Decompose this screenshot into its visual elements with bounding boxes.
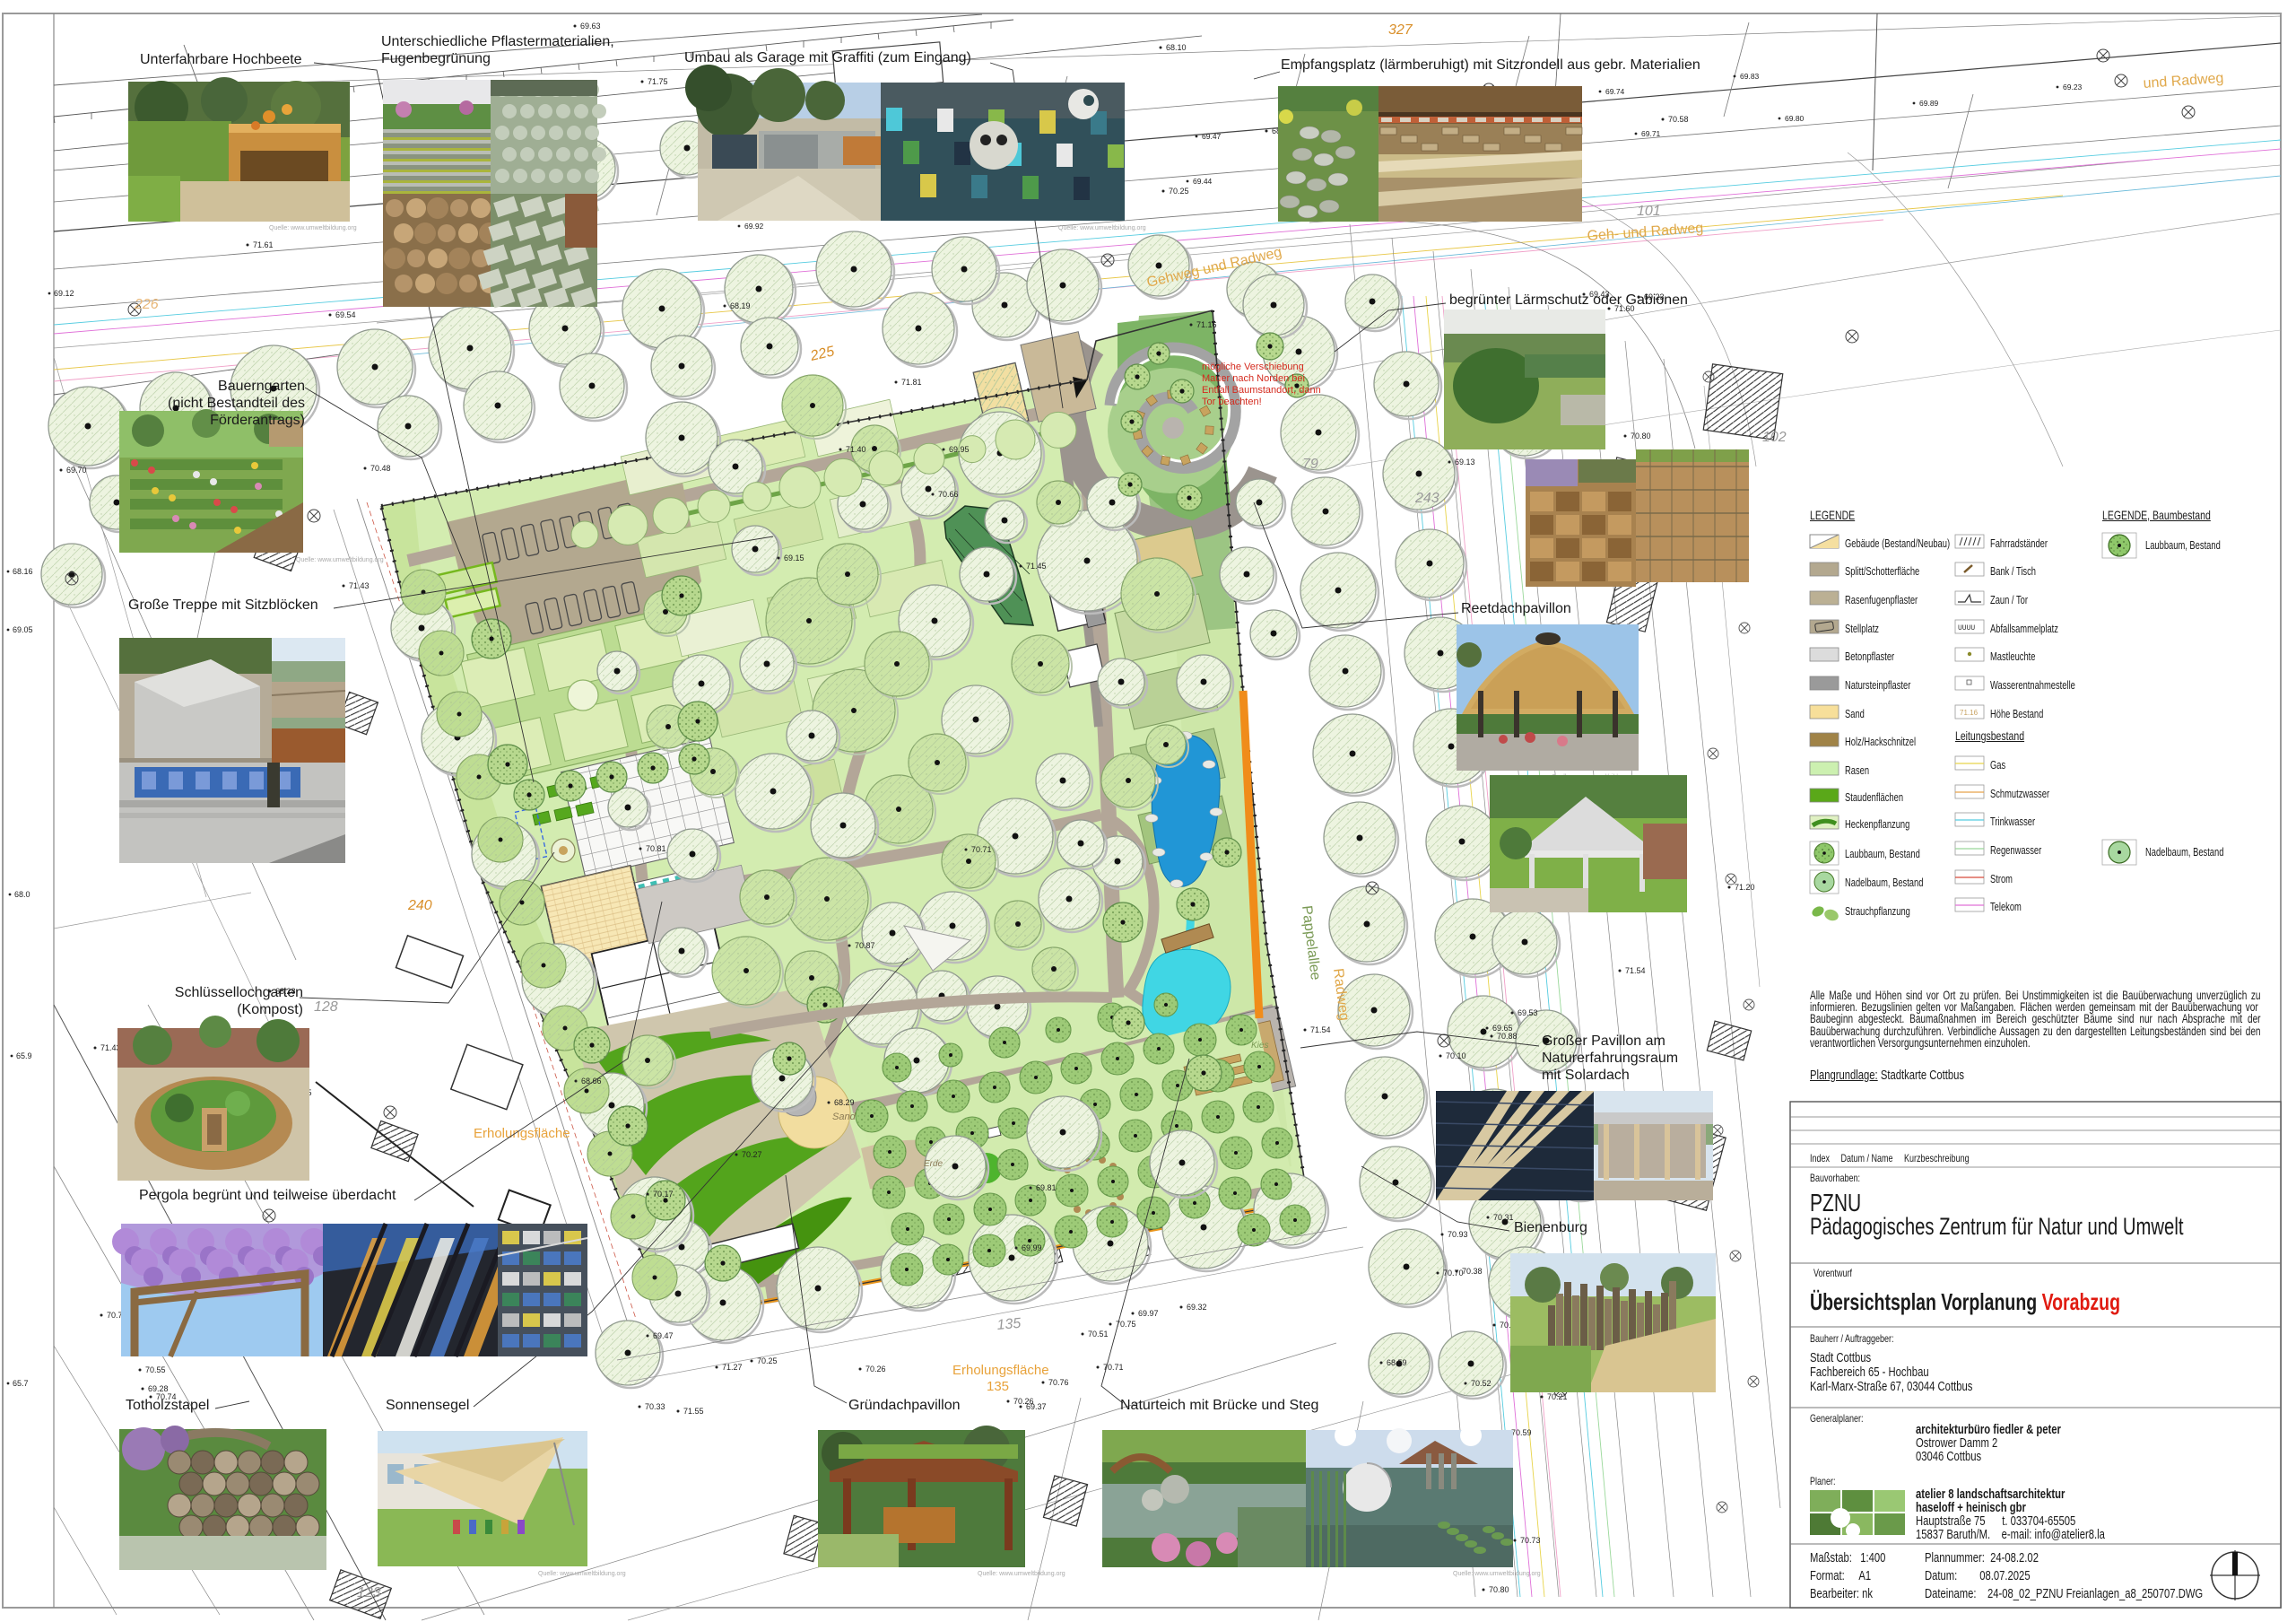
svg-text:70.71: 70.71 bbox=[971, 845, 992, 854]
svg-text:70.66: 70.66 bbox=[938, 490, 959, 499]
svg-text:102: 102 bbox=[1762, 430, 1787, 445]
svg-text:135: 135 bbox=[996, 1316, 1022, 1333]
svg-text:69.74: 69.74 bbox=[1605, 87, 1625, 96]
svg-text:69.99: 69.99 bbox=[1022, 1243, 1042, 1252]
svg-text:71.40: 71.40 bbox=[846, 445, 866, 454]
svg-text:70.55: 70.55 bbox=[145, 1365, 166, 1374]
svg-text:69.05: 69.05 bbox=[13, 625, 33, 634]
svg-text:mögliche Verschiebung: mögliche Verschiebung bbox=[1202, 362, 1304, 372]
svg-text:71.75: 71.75 bbox=[648, 77, 668, 86]
svg-text:69.95: 69.95 bbox=[949, 445, 970, 454]
svg-text:69.12: 69.12 bbox=[54, 289, 74, 298]
svg-text:70.26: 70.26 bbox=[865, 1365, 886, 1373]
svg-text:69.65: 69.65 bbox=[1492, 1024, 1513, 1033]
svg-text:71.16: 71.16 bbox=[1960, 709, 1979, 717]
svg-text:Pappelallee: Pappelallee bbox=[1299, 904, 1323, 981]
svg-text:70.17: 70.17 bbox=[653, 1190, 674, 1199]
svg-text:68.29: 68.29 bbox=[834, 1098, 855, 1107]
svg-text:69.54: 69.54 bbox=[335, 310, 356, 319]
svg-text:Erde: Erde bbox=[924, 1159, 944, 1169]
svg-text:70.80: 70.80 bbox=[1489, 1585, 1509, 1594]
svg-text:123: 123 bbox=[357, 1585, 381, 1600]
svg-text:68.0: 68.0 bbox=[14, 890, 30, 899]
svg-text:69.83: 69.83 bbox=[1740, 72, 1760, 81]
svg-text:70.80: 70.80 bbox=[1631, 432, 1651, 440]
svg-text:70.26: 70.26 bbox=[1013, 1397, 1034, 1406]
svg-text:Erholungsfläche: Erholungsfläche bbox=[952, 1363, 1049, 1378]
svg-text:70.10: 70.10 bbox=[1446, 1051, 1466, 1060]
svg-text:70.73: 70.73 bbox=[1520, 1536, 1541, 1545]
svg-text:69.81: 69.81 bbox=[1036, 1183, 1057, 1192]
svg-text:70.58: 70.58 bbox=[1668, 115, 1689, 124]
svg-text:Radweg: Radweg bbox=[1330, 967, 1352, 1021]
svg-text:70.27: 70.27 bbox=[742, 1150, 762, 1159]
svg-text:71.43: 71.43 bbox=[349, 581, 370, 590]
svg-text:71.45: 71.45 bbox=[1026, 562, 1047, 571]
svg-text:70.25: 70.25 bbox=[1169, 187, 1189, 196]
svg-text:Erholungsfläche: Erholungsfläche bbox=[474, 1126, 570, 1141]
svg-text:68.10: 68.10 bbox=[1166, 43, 1187, 52]
svg-text:70.70: 70.70 bbox=[1443, 1269, 1464, 1278]
svg-text:70.52: 70.52 bbox=[1471, 1379, 1492, 1388]
svg-text:Quelle: www.umweltbildung.org: Quelle: www.umweltbildung.org bbox=[1453, 1571, 1541, 1577]
svg-text:69.92: 69.92 bbox=[744, 222, 764, 231]
svg-text:240: 240 bbox=[407, 898, 432, 913]
svg-text:Sand: Sand bbox=[832, 1112, 857, 1122]
svg-text:79: 79 bbox=[1302, 457, 1318, 472]
svg-text:70.93: 70.93 bbox=[1448, 1230, 1468, 1239]
svg-text:69.47: 69.47 bbox=[1202, 132, 1222, 141]
svg-text:UUUU: UUUU bbox=[1958, 624, 1975, 632]
svg-text:71.54: 71.54 bbox=[1310, 1025, 1331, 1034]
svg-text:68.59: 68.59 bbox=[1387, 1358, 1407, 1367]
svg-text:65.9: 65.9 bbox=[16, 1051, 32, 1060]
svg-text:70.33: 70.33 bbox=[645, 1402, 665, 1411]
svg-text:70.59: 70.59 bbox=[1511, 1428, 1532, 1437]
svg-text:327: 327 bbox=[1388, 22, 1413, 38]
svg-text:128: 128 bbox=[314, 999, 338, 1015]
svg-text:71.81: 71.81 bbox=[901, 378, 922, 387]
svg-text:Quelle: www.umweltbildung.org: Quelle: www.umweltbildung.org bbox=[538, 1571, 626, 1577]
svg-text:Kies: Kies bbox=[1251, 1041, 1268, 1051]
svg-text:Quelle: www.umweltbildung.org: Quelle: www.umweltbildung.org bbox=[1058, 225, 1146, 231]
svg-text:70.87: 70.87 bbox=[855, 941, 875, 950]
svg-text:69.44: 69.44 bbox=[1193, 177, 1213, 186]
svg-text:69.23: 69.23 bbox=[2063, 83, 2083, 92]
svg-text:69.47: 69.47 bbox=[653, 1331, 674, 1340]
svg-text:70.81: 70.81 bbox=[646, 844, 666, 853]
svg-text:Entfall Baumstandort, dann: Entfall Baumstandort, dann bbox=[1202, 385, 1321, 396]
svg-text:71.16: 71.16 bbox=[1196, 320, 1217, 329]
svg-text:70.38: 70.38 bbox=[1462, 1267, 1483, 1276]
svg-text:65.7: 65.7 bbox=[13, 1379, 29, 1388]
svg-text:69.63: 69.63 bbox=[580, 22, 601, 31]
svg-text:243: 243 bbox=[1414, 491, 1439, 506]
svg-text:68.16: 68.16 bbox=[13, 567, 33, 576]
svg-text:70.31: 70.31 bbox=[1493, 1213, 1514, 1222]
svg-text:69.53: 69.53 bbox=[1518, 1008, 1538, 1017]
svg-text:68.19: 68.19 bbox=[730, 301, 751, 310]
svg-text:135: 135 bbox=[987, 1379, 1009, 1394]
svg-text:Quelle: www.umweltbildung.org: Quelle: www.umweltbildung.org bbox=[269, 225, 357, 231]
svg-text:70.51: 70.51 bbox=[1088, 1330, 1109, 1339]
svg-text:69.80: 69.80 bbox=[1785, 114, 1805, 123]
svg-text:226: 226 bbox=[134, 297, 159, 312]
svg-text:Quelle: www.umweltbildung.org: Quelle: www.umweltbildung.org bbox=[978, 1571, 1065, 1577]
svg-text:70.48: 70.48 bbox=[370, 464, 391, 473]
svg-text:70.21: 70.21 bbox=[1547, 1392, 1568, 1401]
svg-text:70.76: 70.76 bbox=[1048, 1378, 1069, 1387]
svg-text:und Radweg: und Radweg bbox=[2143, 71, 2224, 92]
svg-text:225: 225 bbox=[808, 344, 836, 364]
svg-text:71.54: 71.54 bbox=[1625, 966, 1646, 975]
svg-text:70.88: 70.88 bbox=[1497, 1032, 1518, 1041]
svg-text:71.61: 71.61 bbox=[253, 240, 274, 249]
svg-text:69.89: 69.89 bbox=[1919, 99, 1939, 108]
svg-text:Tor beachten!: Tor beachten! bbox=[1202, 397, 1262, 407]
svg-text:101: 101 bbox=[1637, 204, 1661, 219]
svg-text:Mauer nach Norden bei: Mauer nach Norden bei bbox=[1202, 373, 1305, 384]
svg-text:69.70: 69.70 bbox=[66, 466, 87, 475]
svg-text:69.15: 69.15 bbox=[784, 554, 804, 562]
svg-text:71.55: 71.55 bbox=[683, 1407, 704, 1416]
svg-text:70.25: 70.25 bbox=[757, 1356, 778, 1365]
svg-text:69.32: 69.32 bbox=[1187, 1303, 1207, 1312]
svg-text:Quelle: www.umweltbildung.org: Quelle: www.umweltbildung.org bbox=[296, 557, 384, 563]
svg-text:69.97: 69.97 bbox=[1138, 1309, 1159, 1318]
svg-text:71.20: 71.20 bbox=[1735, 883, 1755, 892]
svg-text:69.13: 69.13 bbox=[1455, 458, 1475, 467]
svg-text:69.71: 69.71 bbox=[1641, 129, 1661, 138]
